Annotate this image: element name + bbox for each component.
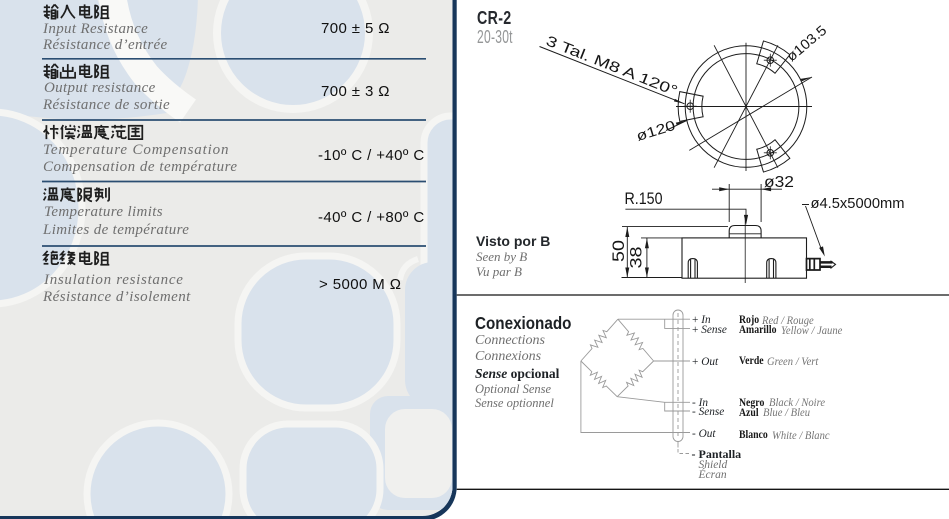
svg-text:R.150: R.150 — [625, 190, 663, 208]
svg-text:50: 50 — [610, 240, 628, 262]
svg-text:3 Tal. M8 A 120°: 3 Tal. M8 A 120° — [544, 33, 680, 99]
svg-text:ø4.5x5000mm: ø4.5x5000mm — [811, 196, 905, 212]
svg-text:ø32: ø32 — [764, 174, 794, 191]
svg-text:ø120: ø120 — [634, 117, 677, 144]
svg-text:38: 38 — [628, 247, 646, 269]
svg-text:ø103.5: ø103.5 — [783, 22, 829, 65]
